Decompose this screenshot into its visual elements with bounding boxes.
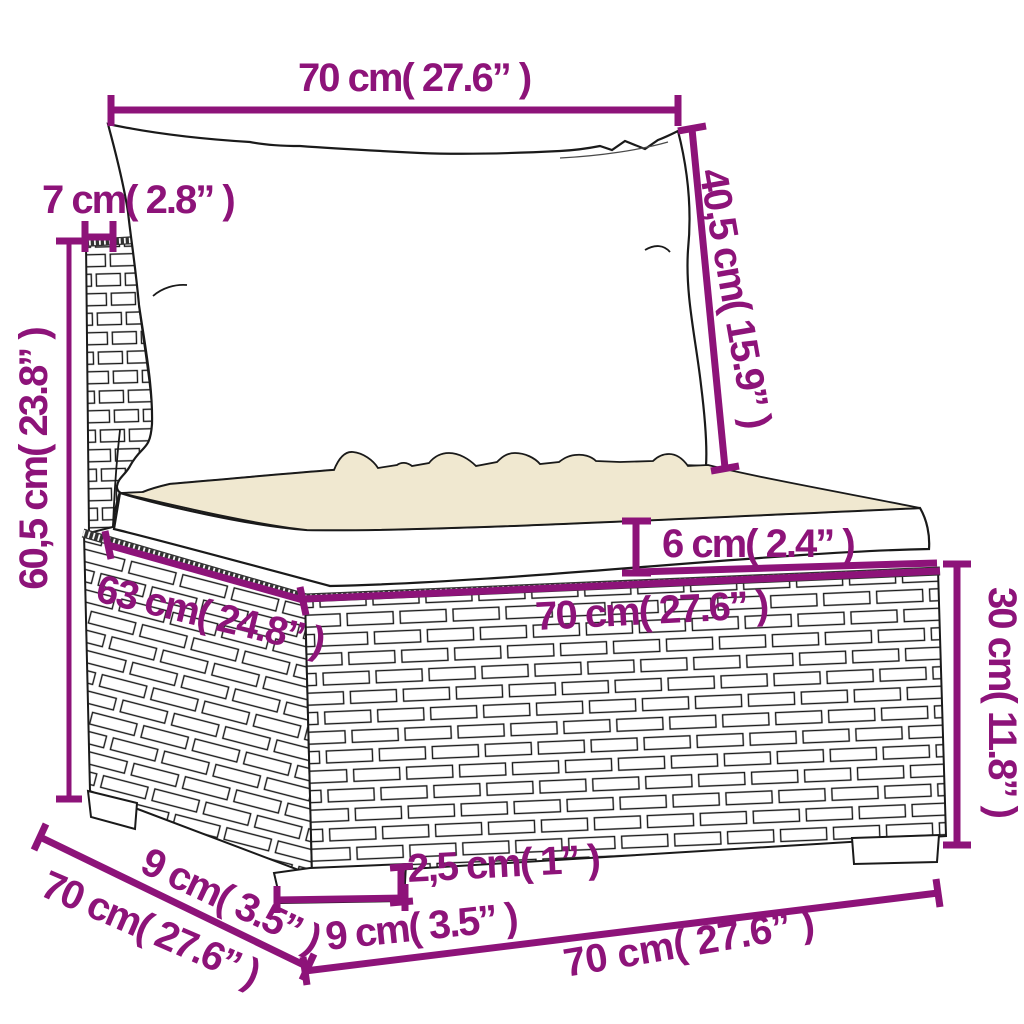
svg-text:7 cm( 2.8” ): 7 cm( 2.8” )	[42, 178, 234, 222]
svg-text:70 cm( 27.6” ): 70 cm( 27.6” )	[298, 56, 531, 100]
svg-text:30 cm( 11.8” ): 30 cm( 11.8” )	[980, 587, 1024, 818]
svg-text:60,5 cm( 23.8” ): 60,5 cm( 23.8” )	[12, 328, 56, 590]
svg-text:6 cm( 2.4” ): 6 cm( 2.4” )	[662, 522, 854, 566]
